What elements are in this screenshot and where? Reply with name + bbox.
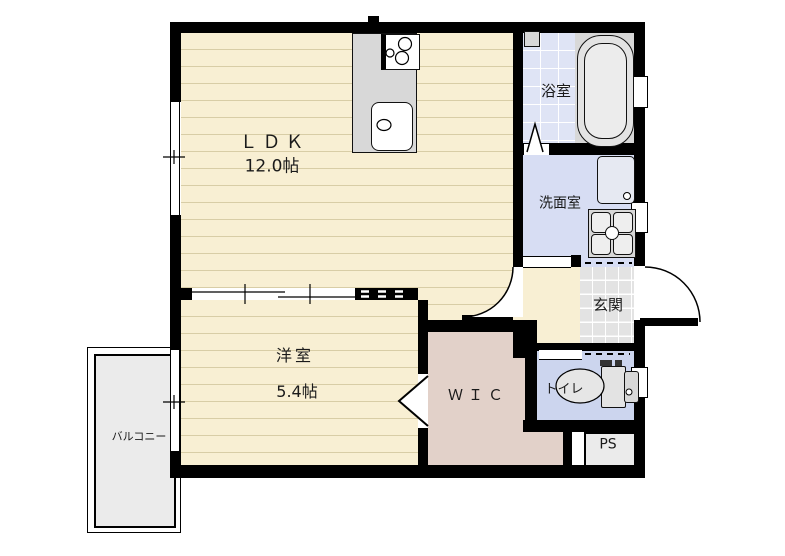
front-door-leaf <box>640 318 698 326</box>
room-label-entrance: 玄関 <box>593 297 623 314</box>
wall-left-4 <box>170 451 181 478</box>
kitchen-sink <box>371 102 413 151</box>
vanity <box>588 209 636 258</box>
room-size-ldk: 12.0帖 <box>245 158 300 177</box>
bath-door-gap <box>524 144 549 155</box>
wall-top <box>170 22 645 33</box>
bath-corner-box <box>524 31 540 47</box>
wall-washroom-hall-pillar <box>571 255 581 267</box>
hall-door-opening <box>513 267 523 317</box>
room-label-ldk: ＬＤＫ <box>240 133 309 153</box>
wall-left-3 <box>170 300 181 350</box>
wall-ldk-bath <box>513 33 523 267</box>
wall-western-wic-upper <box>418 300 428 374</box>
room-label-bath: 浴室 <box>541 83 571 100</box>
front-door-arc <box>645 267 700 322</box>
washer-pan <box>597 156 635 204</box>
wall-ldk-western-right <box>355 288 418 300</box>
room-label-balcony: バルコニー <box>112 431 167 443</box>
wall-western-wic-lower <box>418 428 428 465</box>
stove <box>381 34 420 70</box>
ldk-western-sliding-door <box>192 288 355 300</box>
wall-left-1 <box>170 22 181 102</box>
washroom-door-strip <box>523 256 571 268</box>
western-left-window <box>170 350 180 451</box>
vanity-faucet-icon <box>605 226 619 240</box>
room-label-washroom: 洗面室 <box>539 196 581 211</box>
wic-floor-extension <box>525 432 563 465</box>
wall-ldk-western-left <box>170 288 192 300</box>
wic-door-opening <box>418 374 428 428</box>
ldk-left-window <box>170 102 180 215</box>
wall-ps-left-bar <box>563 432 572 465</box>
room-label-toilet: トイレ <box>544 383 583 397</box>
room-label-wic: ＷＩＣ <box>448 387 508 404</box>
room-label-ps: PS <box>599 437 616 452</box>
wall-bottom <box>170 465 645 478</box>
floor-plan: ＬＤＫ 12.0帖 洋室 5.4帖 浴室 洗面室 玄関 トイレ ＷＩＣ PS バ… <box>0 0 785 556</box>
wall-toilet-left <box>525 352 537 420</box>
front-door-opening <box>634 266 645 320</box>
toilet-base <box>624 371 639 403</box>
bathtub-inner <box>584 43 627 139</box>
hall-door-leaf <box>462 315 513 322</box>
toilet-door-strip <box>539 349 582 360</box>
room-label-western: 洋室 <box>276 347 314 365</box>
toilet-tank <box>601 366 626 408</box>
room-size-western: 5.4帖 <box>276 383 317 401</box>
bathtub <box>577 35 634 147</box>
wall-toilet-bottom <box>523 420 645 432</box>
